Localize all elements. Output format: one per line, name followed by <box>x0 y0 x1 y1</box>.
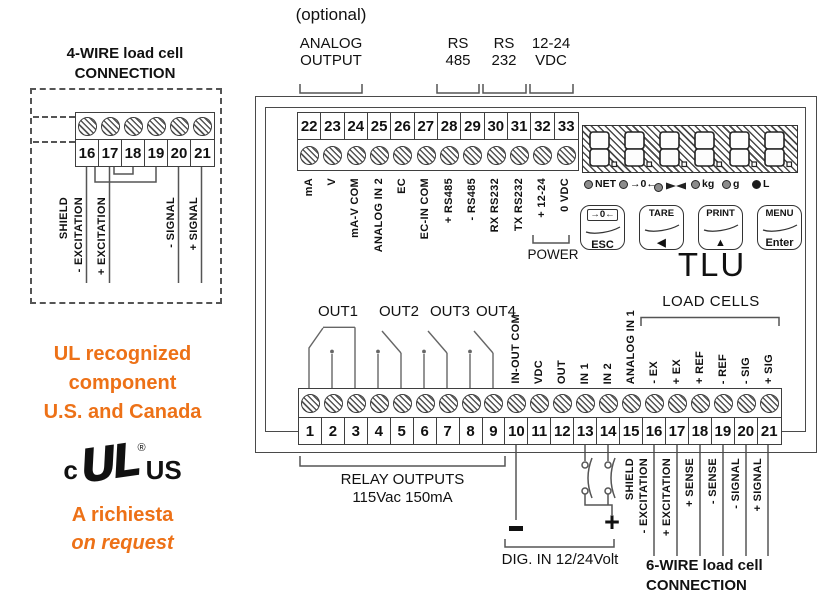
on-request-english: on request <box>20 532 225 555</box>
ul-logo-registered-icon: ® <box>137 442 145 454</box>
screw-head-icon <box>170 117 189 136</box>
led-indicator: NET <box>584 178 616 190</box>
terminal-screw <box>643 389 666 417</box>
cul-us-logo: c UL ® US <box>20 436 225 490</box>
terminal-number: 32 <box>531 113 554 139</box>
terminal-screw <box>345 389 368 417</box>
ul-logo-mark: UL <box>76 432 140 493</box>
terminal-screw <box>122 113 145 139</box>
key-bottom-label: ▲ <box>715 237 726 249</box>
rs485-line1: RS <box>433 35 483 52</box>
ul-line3: U.S. and Canada <box>20 398 225 427</box>
screw-head-icon <box>463 146 482 165</box>
terminal-screw <box>415 140 438 170</box>
terminal-screw <box>438 140 461 170</box>
terminal-number: 23 <box>321 113 344 139</box>
vertical-label: SHIELD <box>57 197 71 239</box>
terminal-number: 24 <box>345 113 368 139</box>
out1-caption: OUT1 <box>308 303 368 320</box>
terminal-screw <box>345 140 368 170</box>
key-divider-swoosh-icon <box>585 226 621 234</box>
screw-head-icon <box>370 146 389 165</box>
terminal-number: 19 <box>145 140 168 166</box>
terminal-screw <box>712 389 735 417</box>
terminal-number: 14 <box>597 418 620 444</box>
rs485-line2: 485 <box>433 52 483 69</box>
terminal-screw <box>368 389 391 417</box>
vertical-label: ANALOG IN 2 <box>372 178 386 252</box>
terminal-number: 12 <box>551 418 574 444</box>
vertical-label: + SIGNAL <box>187 197 201 250</box>
screw-head-icon <box>393 146 412 165</box>
terminal-screw <box>391 389 414 417</box>
terminal-number: 18 <box>122 140 145 166</box>
terminal-screw <box>368 140 391 170</box>
relay-outputs-caption: RELAY OUTPUTS 115Vac 150mA <box>300 471 505 507</box>
vertical-label: IN-OUT COM <box>509 314 523 384</box>
terminal-number: 30 <box>485 113 508 139</box>
terminal-screw <box>461 140 484 170</box>
led-indicator: →0← <box>619 178 657 190</box>
vertical-label: mA <box>302 178 316 196</box>
vertical-label: - EX <box>647 361 661 384</box>
screw-head-icon <box>760 394 779 413</box>
load-cells-caption: LOAD CELLS <box>641 293 781 310</box>
vertical-label: - EXCITATION <box>637 458 651 533</box>
screw-head-icon <box>440 146 459 165</box>
cable-continuation-line <box>33 141 75 143</box>
screw-head-icon <box>484 394 503 413</box>
vertical-label: + RS485 <box>442 178 456 223</box>
vertical-label: - SIGNAL <box>729 458 743 509</box>
terminal-number: 25 <box>368 113 391 139</box>
terminal-number: 6 <box>414 418 437 444</box>
terminal-number: 20 <box>735 418 758 444</box>
terminal-screw <box>508 140 531 170</box>
led-dot-icon <box>752 180 761 189</box>
key-top-label: MENU <box>766 209 794 219</box>
relay-caption-line2: 115Vac 150mA <box>300 489 505 507</box>
number-row: 161718192021 <box>76 139 214 166</box>
display-digit-eight <box>692 130 724 175</box>
terminal-screw <box>531 140 554 170</box>
screw-head-icon <box>370 394 389 413</box>
four-wire-title: 4-WIRE load cell CONNECTION <box>25 44 225 84</box>
on-request-italian: A richiesta <box>20 504 225 527</box>
terminal-number: 21 <box>191 140 214 166</box>
analog-output-caption: ANALOG OUTPUT <box>256 35 406 69</box>
screw-head-icon <box>439 394 458 413</box>
number-row: 123456789101112131415161718192021 <box>299 417 781 444</box>
terminal-screw <box>666 389 689 417</box>
screw-head-icon <box>101 117 120 136</box>
led-dot-icon <box>619 180 628 189</box>
terminal-number: 22 <box>298 113 321 139</box>
six-wire-title-line1: 6-WIRE load cell <box>646 556 816 576</box>
key-bottom-label: Enter <box>765 237 793 249</box>
terminal-number: 4 <box>368 418 391 444</box>
terminal-number: 3 <box>345 418 368 444</box>
number-row: 222324252627282930313233 <box>298 113 578 139</box>
vertical-label: mA-V COM <box>348 178 362 238</box>
vertical-label: - EXCITATION <box>72 197 86 272</box>
led-dot-icon <box>691 180 700 189</box>
screw-head-icon <box>487 146 506 165</box>
terminal-number: 27 <box>415 113 438 139</box>
led-label: →0← <box>630 178 657 190</box>
screw-row <box>298 139 578 170</box>
led-label: g <box>733 178 739 190</box>
led-label: L <box>763 178 769 190</box>
supply-line1: 12-24 <box>521 35 581 52</box>
stability-bowtie-icon <box>665 181 687 191</box>
vertical-label: EC <box>395 178 409 194</box>
terminal-number: 31 <box>508 113 531 139</box>
dig-in-minus-sign <box>509 526 523 531</box>
display-digit-eight <box>657 130 689 175</box>
key-bottom-label: ◀ <box>657 237 665 249</box>
front-key-: PRINT▲ <box>698 205 743 250</box>
vertical-label: + EX <box>670 359 684 384</box>
screw-head-icon <box>691 394 710 413</box>
screw-head-icon <box>324 394 343 413</box>
screw-head-icon <box>530 394 549 413</box>
screw-head-icon <box>417 146 436 165</box>
key-divider-swoosh-icon <box>703 224 739 232</box>
screw-head-icon <box>393 394 412 413</box>
terminal-screw <box>391 140 414 170</box>
terminal-screw <box>485 140 508 170</box>
led-dot-icon <box>584 180 593 189</box>
terminal-number: 16 <box>76 140 99 166</box>
terminal-number: 33 <box>555 113 578 139</box>
terminal-screw <box>322 389 345 417</box>
ul-logo-c: c <box>63 455 77 486</box>
screw-head-icon <box>507 394 526 413</box>
terminal-number: 26 <box>391 113 414 139</box>
key-top-label: PRINT <box>706 209 735 219</box>
terminal-screw <box>168 113 191 139</box>
terminal-number: 21 <box>758 418 781 444</box>
key-top-label: TARE <box>649 209 674 219</box>
terminal-screw <box>735 389 758 417</box>
vertical-label: + SENSE <box>683 458 697 507</box>
terminal-screw <box>191 113 214 139</box>
terminal-number: 15 <box>620 418 643 444</box>
vertical-label: SHIELD <box>623 458 637 500</box>
terminal-screw <box>555 140 578 170</box>
led-label: kg <box>702 178 714 190</box>
vertical-label: IN 2 <box>601 363 615 384</box>
key-divider-swoosh-icon <box>644 224 680 232</box>
terminal-screw <box>437 389 460 417</box>
screw-row <box>76 113 214 139</box>
terminal-screw <box>528 389 551 417</box>
vertical-label: + EXCITATION <box>660 458 674 536</box>
terminal-screw <box>597 389 620 417</box>
screw-head-icon <box>533 146 552 165</box>
vertical-label: IN 1 <box>578 363 592 384</box>
screw-head-icon <box>510 146 529 165</box>
wiring-diagram-page: 4-WIRE load cell CONNECTION 161718192021… <box>0 0 834 614</box>
terminal-number: 16 <box>643 418 666 444</box>
display-digit-eight <box>727 130 759 175</box>
terminal-number: 8 <box>460 418 483 444</box>
screw-head-icon <box>557 146 576 165</box>
vertical-label: + REF <box>693 351 707 384</box>
model-name: TLU <box>652 246 772 284</box>
ul-line1: UL recognized <box>20 340 225 369</box>
vertical-label: V <box>325 178 339 186</box>
terminal-number: 17 <box>666 418 689 444</box>
four-wire-title-line2: CONNECTION <box>25 64 225 84</box>
bottom-terminal-strip: 123456789101112131415161718192021 <box>298 388 782 445</box>
terminal-screw <box>620 389 643 417</box>
terminal-screw <box>758 389 781 417</box>
terminal-screw <box>414 389 437 417</box>
dig-in-caption: DIG. IN 12/24Volt <box>480 551 640 568</box>
screw-head-icon <box>78 117 97 136</box>
supply-line2: VDC <box>521 52 581 69</box>
led-label: NET <box>595 178 616 190</box>
vertical-label: + EXCITATION <box>95 197 109 275</box>
vertical-label: - SIG <box>739 357 753 384</box>
terminal-screw <box>298 140 321 170</box>
optional-caption: (optional) <box>256 5 406 25</box>
ul-line2: component <box>20 369 225 398</box>
vertical-label: VDC <box>532 360 546 384</box>
vertical-label: ANALOG IN 1 <box>624 310 638 384</box>
cable-continuation-line <box>33 116 75 118</box>
screw-head-icon <box>599 394 618 413</box>
four-wire-terminal-strip: 161718192021 <box>75 112 215 167</box>
terminal-number: 9 <box>483 418 506 444</box>
terminal-number: 2 <box>322 418 345 444</box>
screw-head-icon <box>147 117 166 136</box>
terminal-screw <box>689 389 712 417</box>
rs485-caption: RS 485 <box>433 35 483 69</box>
front-key-esc: →0←ESC <box>580 205 625 250</box>
terminal-screw <box>145 113 168 139</box>
led-indicator: kg <box>691 178 714 190</box>
terminal-number: 13 <box>574 418 597 444</box>
key-divider-swoosh-icon <box>762 224 798 232</box>
display-digit-eight <box>762 130 794 175</box>
dig-in-plus-sign: + <box>600 509 624 536</box>
ul-recognized-text: UL recognized component U.S. and Canada <box>20 340 225 427</box>
vertical-label: - SENSE <box>706 458 720 504</box>
vertical-label: EC-IN COM <box>418 178 432 239</box>
terminal-screw <box>460 389 483 417</box>
terminal-screw <box>505 389 528 417</box>
seven-segment-display <box>582 125 798 173</box>
top-terminal-strip: 222324252627282930313233 <box>297 112 579 171</box>
vertical-label: + SIGNAL <box>751 458 765 511</box>
terminal-screw <box>299 389 322 417</box>
ul-logo-us: US <box>146 455 182 486</box>
screw-head-icon <box>300 146 319 165</box>
screw-head-icon <box>416 394 435 413</box>
led-indicator <box>654 178 687 196</box>
supply-caption: 12-24 VDC <box>521 35 581 69</box>
key-bottom-label: ESC <box>591 239 614 251</box>
terminal-number: 17 <box>99 140 122 166</box>
screw-head-icon <box>462 394 481 413</box>
screw-head-icon <box>622 394 641 413</box>
terminal-number: 20 <box>168 140 191 166</box>
vertical-label: OUT <box>555 360 569 384</box>
analog-caption-line2: OUTPUT <box>256 52 406 69</box>
screw-head-icon <box>347 394 366 413</box>
terminal-screw <box>551 389 574 417</box>
six-wire-title-line2: CONNECTION <box>646 576 816 596</box>
screw-head-icon <box>737 394 756 413</box>
terminal-number: 11 <box>528 418 551 444</box>
screw-row <box>299 389 781 417</box>
screw-head-icon <box>193 117 212 136</box>
led-dot-icon <box>654 183 663 192</box>
display-digit-eight <box>622 130 654 175</box>
power-caption: POWER <box>521 247 585 262</box>
vertical-label: + 12-24 <box>535 178 549 218</box>
six-wire-title: 6-WIRE load cell CONNECTION <box>646 556 816 596</box>
relay-caption-line1: RELAY OUTPUTS <box>300 471 505 489</box>
led-indicator: L <box>752 178 769 190</box>
analog-caption-line1: ANALOG <box>256 35 406 52</box>
terminal-screw <box>483 389 506 417</box>
display-digit-eight <box>587 130 619 175</box>
screw-head-icon <box>553 394 572 413</box>
screw-head-icon <box>124 117 143 136</box>
vertical-label: + SIG <box>762 354 776 384</box>
vertical-label: RX RS232 <box>488 178 502 232</box>
vertical-label: - RS485 <box>465 178 479 220</box>
terminal-screw <box>321 140 344 170</box>
terminal-number: 29 <box>461 113 484 139</box>
terminal-number: 28 <box>438 113 461 139</box>
screw-head-icon <box>301 394 320 413</box>
terminal-screw <box>574 389 597 417</box>
led-dot-icon <box>722 180 731 189</box>
screw-head-icon <box>645 394 664 413</box>
screw-head-icon <box>576 394 595 413</box>
four-wire-title-line1: 4-WIRE load cell <box>25 44 225 64</box>
vertical-label: 0 VDC <box>558 178 572 212</box>
terminal-screw <box>76 113 99 139</box>
key-top-label: →0← <box>587 209 617 221</box>
screw-head-icon <box>323 146 342 165</box>
screw-head-icon <box>668 394 687 413</box>
led-indicator: g <box>722 178 739 190</box>
vertical-label: TX RS232 <box>512 178 526 231</box>
terminal-number: 10 <box>505 418 528 444</box>
terminal-number: 5 <box>391 418 414 444</box>
screw-head-icon <box>714 394 733 413</box>
terminal-number: 19 <box>712 418 735 444</box>
terminal-number: 1 <box>299 418 322 444</box>
vertical-label: - REF <box>716 354 730 384</box>
front-key-enter: MENUEnter <box>757 205 802 250</box>
terminal-number: 18 <box>689 418 712 444</box>
front-key-: TARE◀ <box>639 205 684 250</box>
terminal-screw <box>99 113 122 139</box>
screw-head-icon <box>347 146 366 165</box>
vertical-label: - SIGNAL <box>164 197 178 248</box>
terminal-number: 7 <box>437 418 460 444</box>
